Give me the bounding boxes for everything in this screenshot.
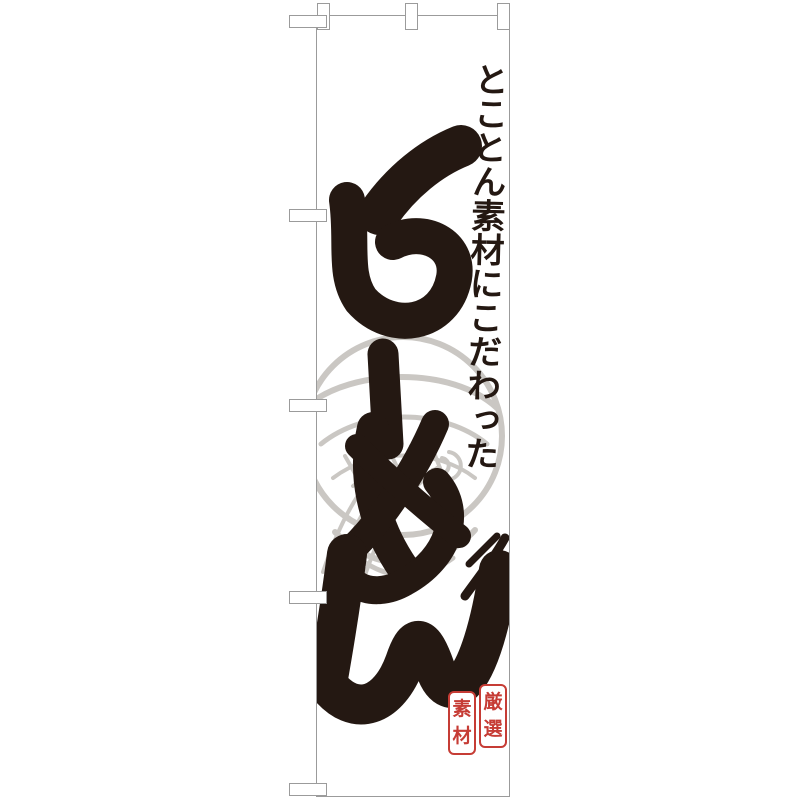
seal-char: 選: [483, 720, 502, 739]
pole-loop-tab-top: [497, 3, 510, 30]
seal-char: 素: [452, 700, 471, 719]
pole-loop-tab-top: [405, 3, 418, 30]
nobori-banner: らーめん とことん素材にこだわった 素 材 厳 選: [316, 15, 510, 797]
catchphrase-text: とことん素材にこだわった: [445, 61, 506, 492]
pole-loop-tab-left: [289, 209, 327, 222]
product-photo: らーめん とことん素材にこだわった 素 材 厳 選: [0, 0, 800, 800]
seal-char: 材: [452, 727, 471, 746]
pole-loop-tab-left: [289, 15, 327, 28]
seal-stamp-gensen: 厳 選: [479, 684, 507, 748]
pole-loop-tab-left: [289, 591, 327, 604]
pole-loop-tab-left: [289, 783, 327, 796]
pole-loop-tab-left: [289, 399, 327, 412]
seal-char: 厳: [483, 693, 502, 712]
hanko-seal: 素 材 厳 選: [448, 684, 507, 755]
seal-stamp-sozai: 素 材: [448, 691, 476, 755]
